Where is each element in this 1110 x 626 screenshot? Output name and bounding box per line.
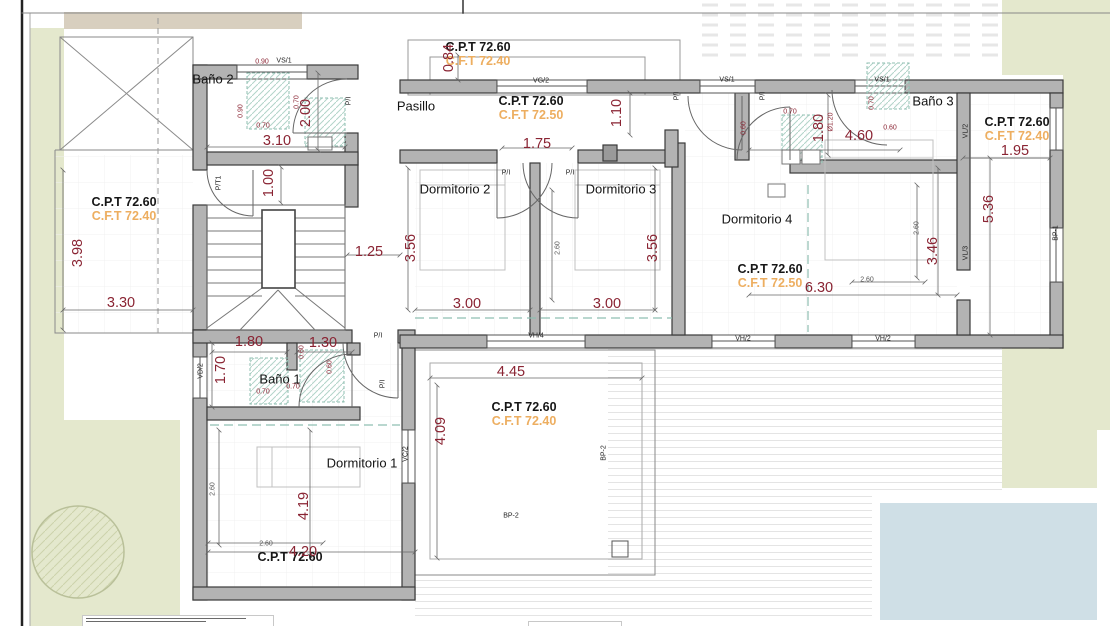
plan-linework xyxy=(0,0,1110,626)
stairs xyxy=(207,205,345,330)
note-box-left xyxy=(82,615,274,626)
tree xyxy=(32,506,124,598)
note-box-right xyxy=(528,621,622,626)
pool xyxy=(872,495,1110,626)
floor-plan: Baño 2PasilloDormitorio 2Dormitorio 3Dor… xyxy=(0,0,1110,626)
